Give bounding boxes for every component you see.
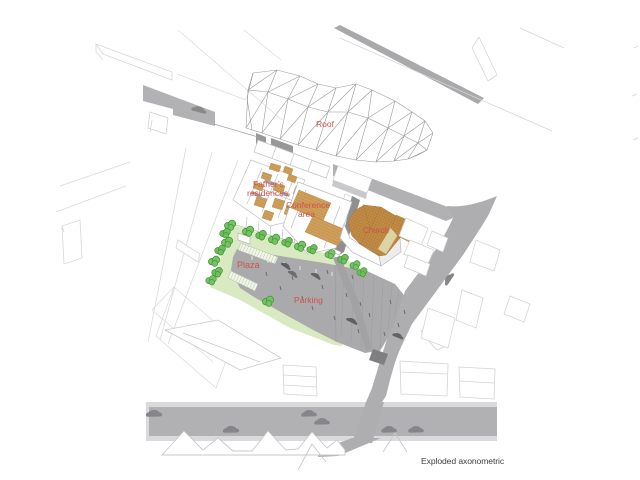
svg-text:Church: Church — [363, 226, 389, 235]
svg-text:Plaza: Plaza — [237, 260, 260, 270]
svg-text:Parking: Parking — [294, 295, 323, 305]
svg-text:Exploded axonometric: Exploded axonometric — [421, 456, 505, 466]
svg-text:residences: residences — [247, 188, 288, 198]
svg-text:Roof: Roof — [316, 119, 335, 129]
svg-text:area: area — [298, 209, 315, 219]
